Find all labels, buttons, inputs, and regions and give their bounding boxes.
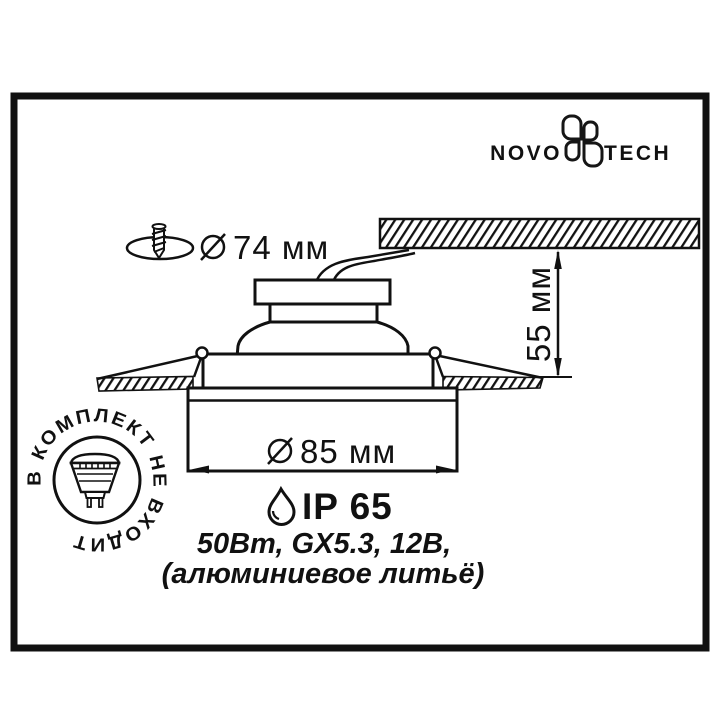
spec-line-material: (алюминиевое литьё) [162,558,485,590]
ceiling-panel [380,219,699,248]
lamp-neck [270,304,377,322]
diameter-dimension-label: 85 мм [300,433,396,470]
mounting-flange [203,354,433,388]
logo-text-tech: TECH [604,142,671,165]
ip-rating-label: IP 65 [302,486,393,527]
ceiling-strip-left [97,377,193,392]
product-diagram-page: NOVO TECH 74 мм [0,0,720,720]
spec-line-electrical: 50Вт, GX5.3, 12В, [197,528,451,560]
depth-dimension-label: 55 мм [520,266,557,362]
logo-text-novo: NOVO [490,142,562,165]
spring-pivot-right [430,348,441,359]
cutout-dimension-label: 74 мм [233,229,329,266]
spring-pivot-left [197,348,208,359]
installation-diagram: NOVO TECH 74 мм [0,0,720,720]
driver-box [255,280,390,304]
